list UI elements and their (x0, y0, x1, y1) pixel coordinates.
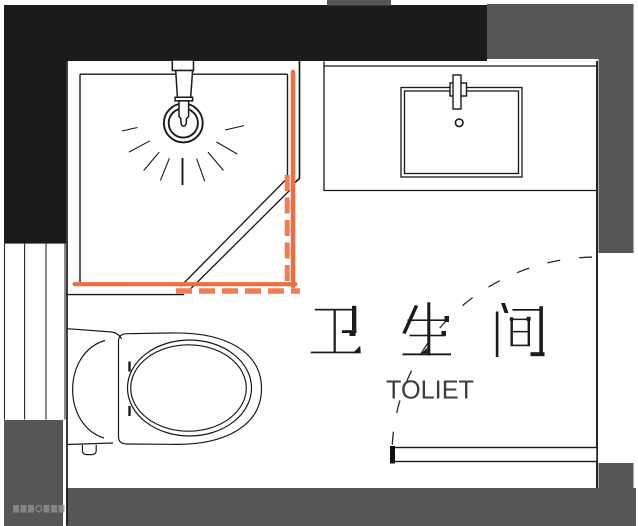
svg-text:TOLIET: TOLIET (386, 375, 474, 405)
